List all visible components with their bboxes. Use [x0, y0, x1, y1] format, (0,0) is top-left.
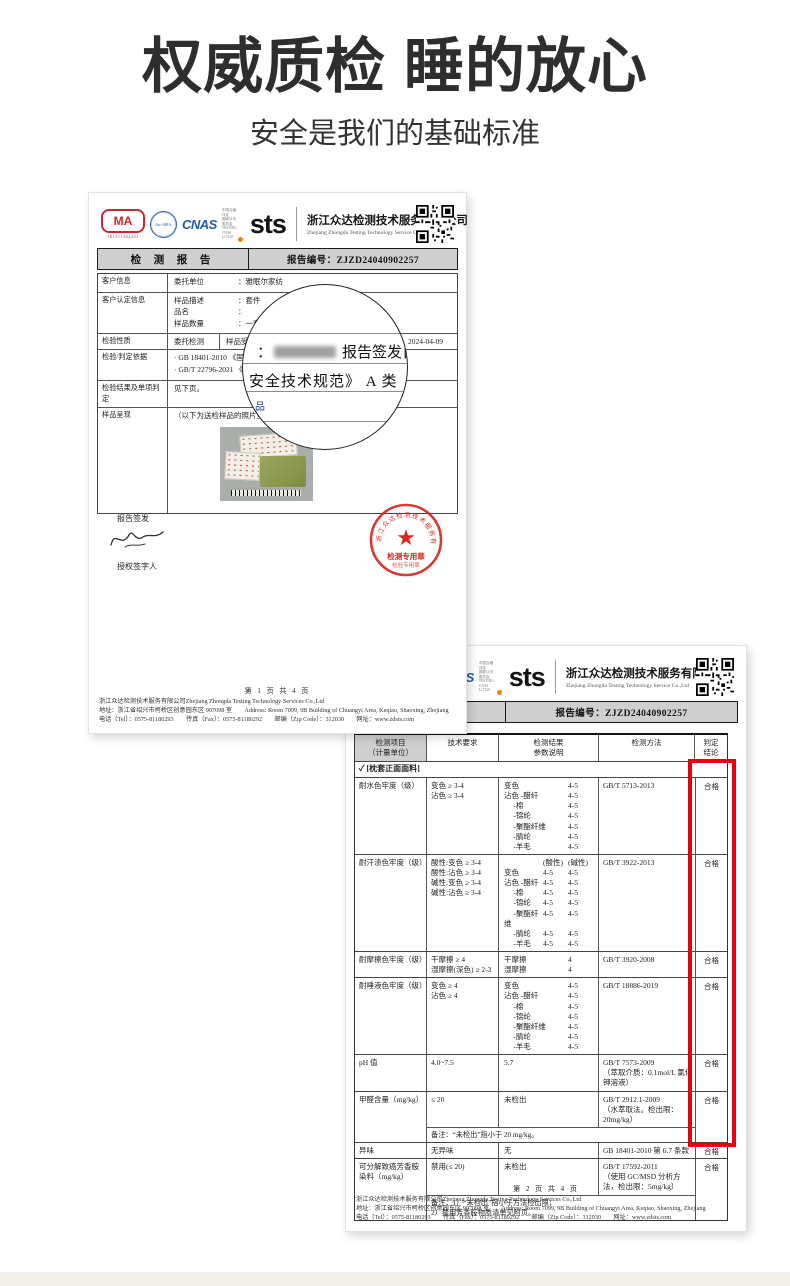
footer-line: 地址：浙江省绍兴市柯桥区创意园东区 907098 室 Address: Room… [99, 707, 456, 716]
result-line: 未检出 [504, 1162, 593, 1172]
result-line: 沾色 -醋纤4-54-5 [504, 878, 593, 888]
info-row-label: 检验结果及单项判定 [98, 381, 168, 407]
footer-line: 电话（Tel）：0575-81180293 传真（Fax）：0575-81180… [356, 1214, 736, 1223]
footer-line: 电话（Tel）：0575-81180293 传真（Fax）：0575-81180… [99, 716, 456, 725]
result-line: 无 [504, 1146, 593, 1156]
result-line: -腈纶4-54-5 [504, 929, 593, 939]
svg-text:检测专用章: 检测专用章 [387, 551, 425, 561]
page-subtitle: 安全是我们的基础标准 [0, 110, 790, 152]
report-title-bar: 检 测 报 告 报告编号：ZJZD24040902257 [97, 248, 458, 270]
report-footer: 第 1 页 共 4 页浙江众达检测技术服务有限公司Zhejiang Zhongd… [99, 686, 456, 725]
stamp-star-icon: ★ [396, 525, 416, 550]
magnified-table-line [243, 363, 407, 364]
result-line: 湿摩擦4 [504, 965, 593, 975]
results-row: pH 值4.0~7.55.7GB/T 7573-2009（萃取介质：0.1mol… [355, 1055, 727, 1091]
result-line: -聚酯纤维4-5 [504, 1022, 593, 1032]
requirement-cell: ≤ 20 [427, 1092, 499, 1127]
magnified-small-char: 品 [255, 398, 265, 413]
info-row-label: 样品呈现 [98, 408, 168, 513]
info-sub-value: ：雅眠尔家纺 [238, 277, 283, 286]
inspection-type-cell: 委托检测 [168, 334, 220, 349]
result-cell: 无 [499, 1143, 599, 1158]
result-line: -腈纶4-5 [504, 832, 593, 842]
info-row: 客户信息委托单位：雅眠尔家纺 [98, 274, 457, 293]
result-line: -锦纶4-54-5 [504, 898, 593, 908]
results-mid-cell: 变色 ≥ 3-4 沾色 ≥ 3-4变色4-5沾色 -醋纤4-5 -棉4-5 -锦… [427, 778, 696, 854]
test-item-cell: 耐水色牢度（级） [355, 778, 427, 854]
results-row: 耐汗渍色牢度（级）酸性:变色 ≥ 3-4 酸性:沾色 ≥ 3-4 碱性:变色 ≥… [355, 855, 727, 952]
results-row: 耐摩擦色牢度（级）干摩擦 ≥ 4 湿摩擦(深色) ≥ 2-3干摩擦4湿摩擦4GB… [355, 952, 727, 978]
results-mid-cell: 4.0~7.55.7GB/T 7573-2009（萃取介质：0.1mol/L 氯… [427, 1055, 696, 1090]
results-main-cells: 干摩擦 ≥ 4 湿摩擦(深色) ≥ 2-3干摩擦4湿摩擦4GB/T 3920-2… [427, 952, 695, 977]
company-name-en: Zhejiang Zhongda Testing Technology Serv… [566, 683, 691, 689]
company-name-cn: 浙江众达检测技术服务有限公司 [566, 665, 691, 681]
results-table: 检测项目（计量单位）技术要求检测结果参数说明检测方法判定结论✓ [枕套正面面料]… [354, 733, 728, 1221]
requirement-cell: 酸性:变色 ≥ 3-4 酸性:沾色 ≥ 3-4 碱性:变色 ≥ 3-4 碱性:沾… [427, 855, 499, 951]
photo-ruler [231, 490, 301, 496]
test-item-cell: 耐唾液色牢度（级） [355, 978, 427, 1054]
footer-line: 浙江众达检测技术服务有限公司Zhejiang Zhongda Testing T… [99, 698, 456, 707]
report-page-1: MA181511262431ilac-MRACNAS中国合格评定国家认可委员会T… [88, 192, 467, 734]
result-line: 变色4-5 [504, 981, 593, 991]
magnifier-circle: ： 报告签发日 安全技术规范》 A 类 品 [242, 284, 408, 450]
method-cell: GB/T 5713-2013 [599, 778, 695, 854]
info-sub-label: 样品数量 [174, 318, 238, 329]
info-sub-value: ：套件 [238, 296, 261, 305]
page-number: 第 1 页 共 4 页 [99, 686, 456, 696]
results-main-cells: 变色 ≥ 4 沾色 ≥ 4变色4-5沾色 -醋纤4-5 -棉4-5 -锦纶4-5… [427, 978, 695, 1054]
company-name-cn: 浙江众达检测技术服务有限公司 [307, 212, 411, 228]
result-cell: 5.7 [499, 1055, 599, 1090]
results-section-label: ✓ [枕套正面面料] [355, 762, 727, 778]
results-mid-cell: 无异味无GB 18401-2010 第 6.7 条款 [427, 1143, 696, 1158]
requirement-cell: 变色 ≥ 4 沾色 ≥ 4 [427, 978, 499, 1054]
requirement-cell: 无异味 [427, 1143, 499, 1158]
result-line: 干摩擦4 [504, 955, 593, 965]
results-mid-cell: 干摩擦 ≥ 4 湿摩擦(深色) ≥ 2-3干摩擦4湿摩擦4GB/T 3920-2… [427, 952, 696, 977]
results-mid-cell: ≤ 20未检出GB/T 2912.1-2009（水萃取法。检出限：20mg/kg… [427, 1092, 696, 1142]
result-cell: 干摩擦4湿摩擦4 [499, 952, 599, 977]
info-row-label: 客户信息 [98, 274, 168, 292]
results-main-cells: 酸性:变色 ≥ 3-4 酸性:沾色 ≥ 3-4 碱性:变色 ≥ 3-4 碱性:沾… [427, 855, 695, 951]
receipt-date-value: 2024-04-09 [408, 336, 443, 347]
result-line: -锦纶4-5 [504, 1012, 593, 1022]
test-item-cell: 耐汗渍色牢度（级） [355, 855, 427, 951]
results-header-cell: 检测结果参数说明 [499, 735, 599, 761]
magnified-colon: ： [257, 341, 272, 362]
result-line: (酸性)(碱性) [504, 858, 593, 868]
results-main-cells: 4.0~7.55.7GB/T 7573-2009（萃取介质：0.1mol/L 氯… [427, 1055, 695, 1090]
results-main-cells: 无异味无GB 18401-2010 第 6.7 条款 [427, 1143, 695, 1158]
results-mid-cell: 变色 ≥ 4 沾色 ≥ 4变色4-5沾色 -醋纤4-5 -棉4-5 -锦纶4-5… [427, 978, 696, 1054]
result-line: 5.7 [504, 1058, 593, 1068]
test-item-cell: 耐摩擦色牢度（级） [355, 952, 427, 977]
result-line: -聚酯纤维4-5 [504, 822, 593, 832]
requirement-cell: 变色 ≥ 3-4 沾色 ≥ 3-4 [427, 778, 499, 854]
sample-fabric-green [260, 456, 306, 487]
qr-code-icon [416, 205, 454, 243]
info-row-label: 客户认定信息 [98, 293, 168, 333]
results-mid-cell: 酸性:变色 ≥ 3-4 酸性:沾色 ≥ 3-4 碱性:变色 ≥ 3-4 碱性:沾… [427, 855, 696, 951]
info-sub-label: 委托单位 [174, 276, 238, 287]
signature [105, 523, 169, 553]
cma-mark: MA [101, 209, 145, 233]
blurred-date [274, 346, 336, 358]
report-header-logos: MA181511262431ilac-MRACNAS中国合格评定国家认可委员会T… [101, 203, 454, 245]
page-title: 权威质检 睡的放心 [0, 18, 790, 105]
results-row: 甲醛含量（mg/kg）≤ 20未检出GB/T 2912.1-2009（水萃取法。… [355, 1092, 727, 1143]
result-line: 沾色 -醋纤4-5 [504, 991, 593, 1001]
magnified-standard-line: 安全技术规范》 A 类 [249, 370, 398, 391]
page-bottom-strip [0, 1272, 790, 1286]
results-main-cells: 变色 ≥ 3-4 沾色 ≥ 3-4变色4-5沾色 -醋纤4-5 -棉4-5 -锦… [427, 778, 695, 854]
cnas-accreditation-text: 中国合格评定国家认可委员会TESTINGCNAS L17128 [479, 661, 502, 692]
results-table-header: 检测项目（计量单位）技术要求检测结果参数说明检测方法判定结论 [355, 735, 727, 762]
result-line: -锦纶4-5 [504, 811, 593, 821]
result-cell: (酸性)(碱性)变色4-54-5沾色 -醋纤4-54-5 -棉4-54-5 -锦… [499, 855, 599, 951]
results-header-cell: 检测方法 [599, 735, 695, 761]
page: 权威质检 睡的放心 安全是我们的基础标准 MA181511262431ilac-… [0, 0, 790, 1286]
cma-logo: MA181511262431 [101, 209, 145, 239]
company-name-en: Zhejiang Zhongda Testing Technology Serv… [307, 230, 411, 236]
magnified-issue-date-line: ： 报告签发日 [257, 341, 408, 362]
result-line: 未检出 [504, 1095, 593, 1105]
method-cell: GB/T 7573-2009（萃取介质：0.1mol/L 氯化钾溶液） [599, 1055, 695, 1090]
ilac-mra-logo: ilac-MRA [150, 211, 177, 238]
test-item-cell: pH 值 [355, 1055, 427, 1090]
result-line: -棉4-5 [504, 1002, 593, 1012]
report-number: 报告编号：ZJZD24040902257 [249, 249, 457, 269]
result-cell: 未检出 [499, 1092, 599, 1127]
report-number: 报告编号：ZJZD24040902257 [506, 702, 737, 722]
method-cell: GB/T 3922-2013 [599, 855, 695, 951]
logo-divider [296, 207, 297, 241]
method-cell: GB 18401-2010 第 6.7 条款 [599, 1143, 695, 1158]
test-item-cell: 甲醛含量（mg/kg） [355, 1092, 427, 1142]
results-row: 异味无异味无GB 18401-2010 第 6.7 条款合格 [355, 1143, 727, 1159]
requirement-cell: 4.0~7.5 [427, 1055, 499, 1090]
sts-logo: sts [250, 209, 286, 240]
result-line: 变色4-54-5 [504, 868, 593, 878]
result-line: -羊毛4-54-5 [504, 939, 593, 949]
method-cell: GB/T 2912.1-2009（水萃取法。检出限：20mg/kg） [599, 1092, 695, 1127]
footer-line: 浙江众达检测技术服务有限公司Zhejiang Zhongda Testing T… [356, 1196, 736, 1205]
cnas-logo: CNAS [182, 217, 217, 232]
cnas-accreditation-text: 中国合格评定国家认可委员会TESTINGCNAS L17128 [222, 208, 243, 239]
company-name: 浙江众达检测技术服务有限公司Zhejiang Zhongda Testing T… [566, 665, 691, 689]
info-sub-label: 样品描述 [174, 295, 238, 306]
footer-line: 地址：浙江省绍兴市柯桥区创意园东区 907098 室 Address: Room… [356, 1205, 736, 1214]
info-sub-value: ： [238, 307, 246, 316]
result-line: -聚酯纤维4-54-5 [504, 909, 593, 929]
logo-divider [555, 660, 556, 694]
results-row: 耐唾液色牢度（级）变色 ≥ 4 沾色 ≥ 4变色4-5沾色 -醋纤4-5 -棉4… [355, 978, 727, 1055]
company-stamp-icon: 浙江众达检测技术服务有限公司 ★ 检测专用章 检验专用章 [367, 501, 445, 579]
result-line: -羊毛4-5 [504, 842, 593, 852]
report-title: 检 测 报 告 [98, 249, 249, 269]
authorized-signatory-label: 授权签字人 [117, 561, 157, 572]
results-header-cell: 检测项目（计量单位） [355, 735, 427, 761]
orange-dot-icon [238, 237, 243, 242]
note-cell: 备注：“未检出”指小于 20 mg/kg。 [427, 1127, 695, 1142]
magnified-table-line [243, 391, 407, 392]
sts-logo: sts [509, 662, 545, 693]
company-name: 浙江众达检测技术服务有限公司Zhejiang Zhongda Testing T… [307, 212, 411, 236]
test-item-cell: 异味 [355, 1143, 427, 1158]
result-cell: 变色4-5沾色 -醋纤4-5 -棉4-5 -锦纶4-5 -聚酯纤维4-5 -腈纶… [499, 778, 599, 854]
results-main-cells: ≤ 20未检出GB/T 2912.1-2009（水萃取法。检出限：20mg/kg… [427, 1092, 695, 1127]
magnified-issue-label: 报告签发日 [342, 341, 408, 362]
page-number: 第 2 页 共 4 页 [356, 1184, 736, 1194]
result-cell: 变色4-5沾色 -醋纤4-5 -棉4-5 -锦纶4-5 -聚酯纤维4-5 -腈纶… [499, 978, 599, 1054]
info-sub-label: 品名 [174, 306, 238, 317]
result-line: -羊毛4-5 [504, 1042, 593, 1052]
requirement-cell: 干摩擦 ≥ 4 湿摩擦(深色) ≥ 2-3 [427, 952, 499, 977]
magnified-table-line [243, 421, 407, 422]
magnified-table-line [243, 333, 407, 334]
info-row-label: 检验/判定依据 [98, 350, 168, 380]
result-line: -棉4-54-5 [504, 888, 593, 898]
results-header-cell: 判定结论 [695, 735, 727, 761]
results-header-cell: 技术要求 [427, 735, 499, 761]
svg-text:检验专用章: 检验专用章 [392, 561, 420, 569]
result-line: -棉4-5 [504, 801, 593, 811]
method-cell: GB/T 3920-2008 [599, 952, 695, 977]
verdict-highlight-box [688, 759, 736, 1147]
orange-dot-icon [497, 690, 502, 695]
info-row-label: 检验性质 [98, 334, 168, 349]
results-row: 耐水色牢度（级）变色 ≥ 3-4 沾色 ≥ 3-4变色4-5沾色 -醋纤4-5 … [355, 778, 727, 855]
sample-fabric-printed-small [224, 451, 260, 481]
report-footer: 第 2 页 共 4 页浙江众达检测技术服务有限公司Zhejiang Zhongd… [356, 1184, 736, 1223]
result-line: 沾色 -醋纤4-5 [504, 791, 593, 801]
qr-code-icon [696, 658, 734, 696]
method-cell: GB/T 18886-2019 [599, 978, 695, 1054]
cma-number: 181511262431 [101, 234, 145, 239]
result-line: -腈纶4-5 [504, 1032, 593, 1042]
result-line: 变色4-5 [504, 781, 593, 791]
